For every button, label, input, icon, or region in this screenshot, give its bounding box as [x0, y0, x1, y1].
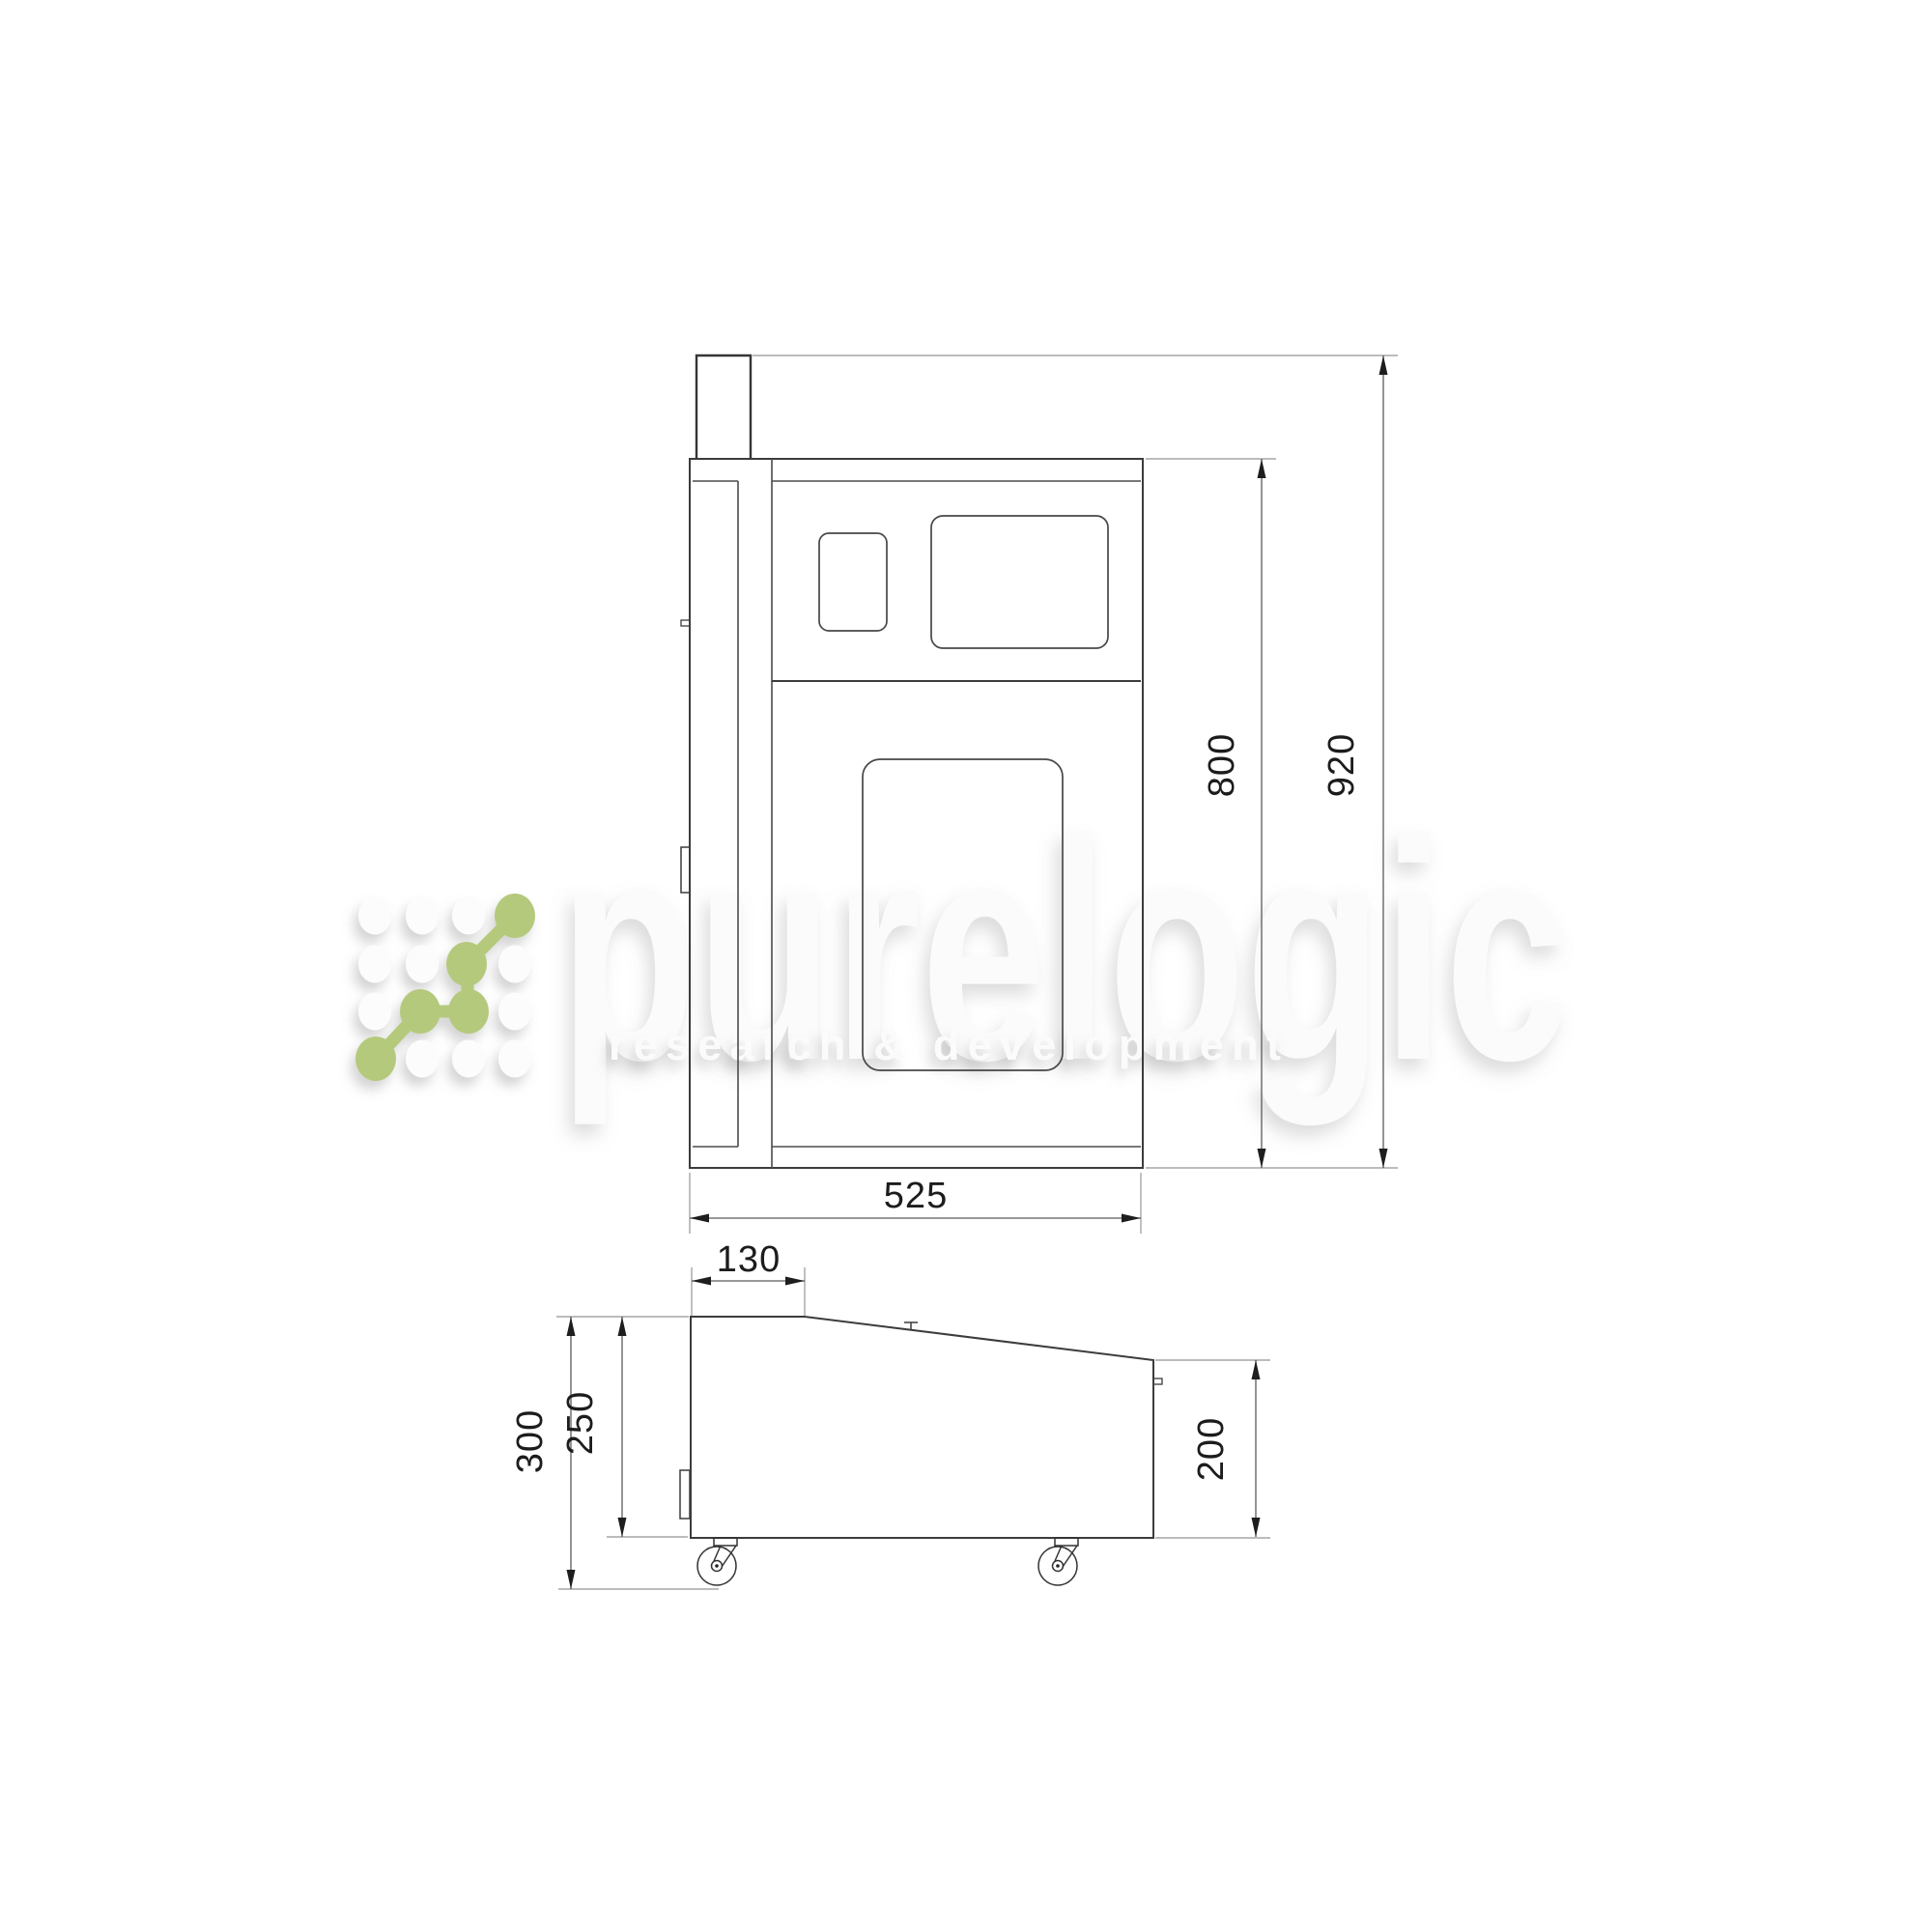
- side-rear-tab: [1153, 1378, 1162, 1384]
- side-front-handle: [680, 1470, 690, 1519]
- dim-label-total-height-920: 920: [1321, 733, 1362, 797]
- front-hinge-tab: [681, 620, 690, 626]
- technical-drawing-page: purelogic research & development: [0, 0, 1932, 1932]
- caster-wheel-right: [1038, 1538, 1078, 1585]
- watermark-brand-text: purelogic: [559, 775, 1570, 1127]
- watermark-tagline-text: research & development: [609, 1020, 1281, 1069]
- front-chimney: [696, 355, 751, 459]
- front-control-panel: [819, 533, 887, 631]
- dim-label-width-525: 525: [884, 1176, 948, 1216]
- watermark: purelogic research & development: [355, 775, 1570, 1127]
- dim-label-top-flat-130: 130: [717, 1239, 781, 1280]
- caster-wheel-left: [697, 1538, 737, 1585]
- technical-drawing-canvas: purelogic research & development: [0, 0, 1932, 1932]
- dim-label-side-body-250: 250: [560, 1391, 601, 1455]
- dim-label-side-rear-200: 200: [1191, 1417, 1232, 1481]
- dim-label-side-total-300: 300: [510, 1409, 551, 1473]
- dim-label-body-height-800: 800: [1202, 733, 1242, 797]
- side-view: [680, 1317, 1162, 1585]
- front-display-panel: [931, 516, 1108, 648]
- watermark-logo: [355, 894, 535, 1081]
- side-body-outline: [691, 1317, 1153, 1538]
